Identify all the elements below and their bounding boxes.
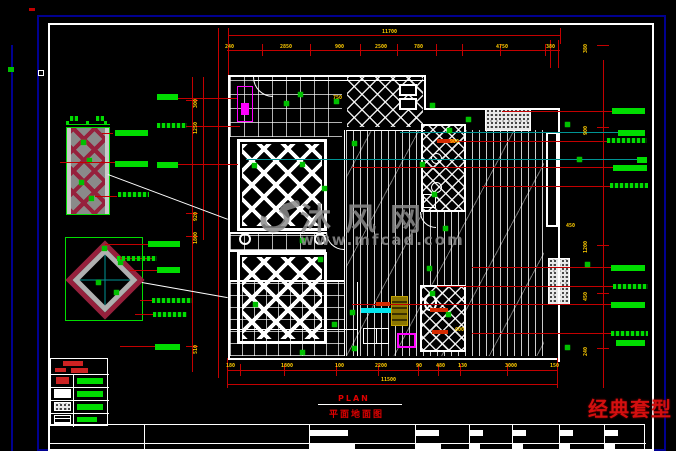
green-label-bar [613,165,647,171]
title-block-text [513,444,523,450]
dimension-line [397,44,398,56]
dimension-value: 900 [584,126,589,135]
edge-mark [8,67,14,72]
plan-marker [252,163,257,168]
dimension-line [95,196,117,197]
dimension-line [310,44,311,56]
detail-marker [102,246,107,251]
dimension-tick [597,45,609,46]
title-block-text [416,444,441,450]
dimension-line [360,44,361,56]
title-block-text [470,430,483,436]
green-label-bar [148,241,180,247]
dimension-tick [597,127,609,128]
green-label-bar [157,94,178,100]
green-label-bar [612,108,645,114]
wall [346,130,425,131]
dimension-line [482,186,610,187]
dimension-value: 380 [584,44,589,53]
diamond-tile-room-1 [237,139,327,231]
plan-marker [332,322,337,327]
dimension-value: 920 [194,212,199,221]
title-block-text [560,430,573,436]
dimension-value: 900 [450,140,459,145]
green-label-text [157,123,187,128]
title-block-text [560,444,570,450]
dimension-value: 780 [414,45,423,50]
red-label-text [376,302,390,306]
plan-marker [300,238,305,243]
wall [228,280,345,282]
legend-label-bar [77,417,97,422]
wall [228,75,230,360]
plan-marker [253,302,258,307]
green-label-bar [637,157,647,163]
title-underline [318,404,402,405]
dimension-line [140,300,152,301]
detail-marker [114,290,119,295]
detail-dim-line [66,124,110,125]
plan-marker [446,312,451,317]
dimension-line [240,364,241,376]
sofa [546,132,558,227]
green-label-bar [611,302,645,308]
green-label-bar [115,161,148,167]
green-label-text [152,298,192,303]
wall [424,108,560,110]
legend-swatch-speckle [54,402,71,411]
dimension-value: 1200 [584,241,589,253]
plan-marker [443,226,448,231]
corner-mark [29,8,35,11]
plan-marker [352,141,357,146]
dimension-value: 600 [455,328,464,333]
plan-marker [420,162,425,167]
dimension-value: 1250 [194,122,199,134]
dimension-value: 1800 [194,232,199,244]
green-label-text [613,284,648,289]
plan-marker [565,122,570,127]
legend-label-bar [77,378,103,384]
dimension-value: 480 [436,364,445,369]
wall [357,282,358,356]
detail-marker [79,180,84,185]
window-line [254,80,424,81]
green-label-bar [611,265,645,271]
kitchen-tile-floor [230,282,344,356]
dimension-value: 11500 [381,378,396,383]
dimension-value: 3000 [505,364,517,369]
dimension-line [462,44,463,56]
legend-divider [51,387,109,388]
plan-marker [350,310,355,315]
table-divider [144,425,145,451]
kitchen-cabinet [391,296,408,326]
green-label-bar [115,130,148,136]
dimension-line [603,60,604,388]
detail-diamond-pattern [71,128,105,214]
dimension-line [135,314,153,315]
legend-title-mark [71,368,88,373]
diamond-tile-pattern [242,144,322,226]
plan-marker [318,257,323,262]
dimension-value: 100 [335,364,344,369]
green-label-bar [618,130,645,136]
legend-divider [51,400,109,401]
dimension-line [558,40,559,68]
dimension-value: 900 [335,45,344,50]
plan-marker [430,103,435,108]
green-label-bar [616,340,645,346]
detail-drawing-2 [65,237,143,321]
plan-marker [432,192,437,197]
title-block-text [605,444,615,450]
plan-marker [447,128,452,133]
dimension-line [102,133,113,134]
dimension-line [437,141,607,142]
dimension-line [203,77,204,240]
inlay-rotated-square [65,240,144,319]
title-block-text [605,430,618,436]
dimension-line [105,244,152,245]
dimension-line [173,98,237,99]
balcony-door-magenta [397,333,416,348]
dimension-line [228,35,560,36]
dimension-line [472,267,611,268]
sink-divider [376,328,377,344]
detail-drawing-1 [66,127,110,215]
closet-box [399,98,417,110]
plan-marker [284,101,289,106]
plan-marker [466,117,471,122]
legend-swatch-red [56,377,69,384]
green-label-text [117,256,157,261]
dimension-tick [597,245,609,246]
title-block-text [310,444,355,450]
title-block-text [310,430,348,436]
outer-frame-line [11,45,13,451]
wall [344,130,345,356]
wall [558,108,560,362]
green-label-bar [155,344,180,350]
column-symbol [239,233,251,245]
dimension-line [560,28,561,44]
legend-divider-vert [73,374,74,427]
dimension-line [352,304,611,305]
dimension-value: 4750 [496,45,508,50]
green-label-text [611,331,648,336]
dimension-value: 510 [194,345,199,354]
dimension-value: 130 [458,364,467,369]
drawing-title-cn: 平面地面图 [329,407,384,420]
detail-marker [96,280,101,285]
dimension-value: 2850 [280,45,292,50]
detail-side-band [105,128,109,214]
legend-divider [51,374,109,375]
dimension-value: 2500 [375,45,387,50]
title-block-text [513,430,526,436]
dimension-line [218,28,219,378]
plan-marker [585,262,590,267]
legend-title-mark [63,361,83,366]
detail-dim-label [70,116,78,121]
dimension-value: 300 [194,99,199,108]
green-label-text [153,312,187,317]
dimension-value: 2200 [375,364,387,369]
dimension-tick [597,348,609,349]
dimension-value: 240 [225,45,234,50]
dimension-line [352,167,613,168]
wall [424,75,426,110]
dimension-line [437,286,613,287]
plan-marker [577,157,582,162]
plan-marker [300,162,305,167]
dimension-line [436,44,437,56]
dimension-line [120,346,155,347]
detail-marker [81,140,86,145]
red-label-text [432,330,448,334]
dimension-line [227,50,560,51]
dimension-value: 150 [550,364,559,369]
dimension-line [60,162,115,163]
plan-marker [298,92,303,97]
plan-marker [565,345,570,350]
wall [228,250,326,252]
dimension-line [130,270,157,271]
closet-box [399,84,417,96]
legend-label-bar [77,391,103,397]
dimension-line [472,333,611,334]
detail-dim-label [96,116,104,121]
cad-drawing-canvas: 沐风网 www.mfcad.com PLAN 平面地面图 经典套型 117002… [0,0,676,451]
dimension-value: 180 [226,364,235,369]
dimension-value: 380 [546,45,555,50]
dimension-line [228,28,229,75]
dimension-line [502,111,612,112]
dimension-value: 1800 [281,364,293,369]
dimension-value: 450 [584,292,589,301]
title-block-text [416,430,439,436]
dimension-line [262,44,263,56]
green-label-bar [157,267,180,273]
legend-label-bar [77,404,103,410]
green-label-text [610,183,648,188]
dimension-value: 11700 [382,30,397,35]
plan-marker [352,346,357,351]
plan-marker [322,186,327,191]
dimension-value: 90 [416,364,422,369]
dimension-line [173,164,238,165]
legend-swatch-white [54,389,71,398]
detail-marker [89,196,94,201]
drawing-title-en: PLAN [338,394,370,403]
green-label-bar [157,162,178,168]
green-label-text [607,138,647,143]
green-label-text [118,192,149,197]
dimension-tick [597,293,609,294]
plan-marker [427,266,432,271]
legend-title-mark [55,368,66,372]
entry-door-leaf [241,103,249,115]
style-tag: 经典套型 [588,393,672,422]
title-block-text [470,444,480,450]
legend-table [50,358,108,426]
legend-swatch-hatch [54,415,71,424]
dimension-line [227,384,557,385]
legend-divider [51,413,109,414]
wall [228,358,558,360]
selection-grip[interactable] [38,70,44,76]
dimension-value: 240 [584,347,589,356]
plan-marker [430,291,435,296]
dimension-value: 450 [566,224,575,229]
kitchen-counter-cyan [361,308,391,313]
dimension-value: 750 [333,96,342,101]
plan-marker [300,350,305,355]
counter-line [230,329,358,330]
column-symbol [314,233,326,245]
